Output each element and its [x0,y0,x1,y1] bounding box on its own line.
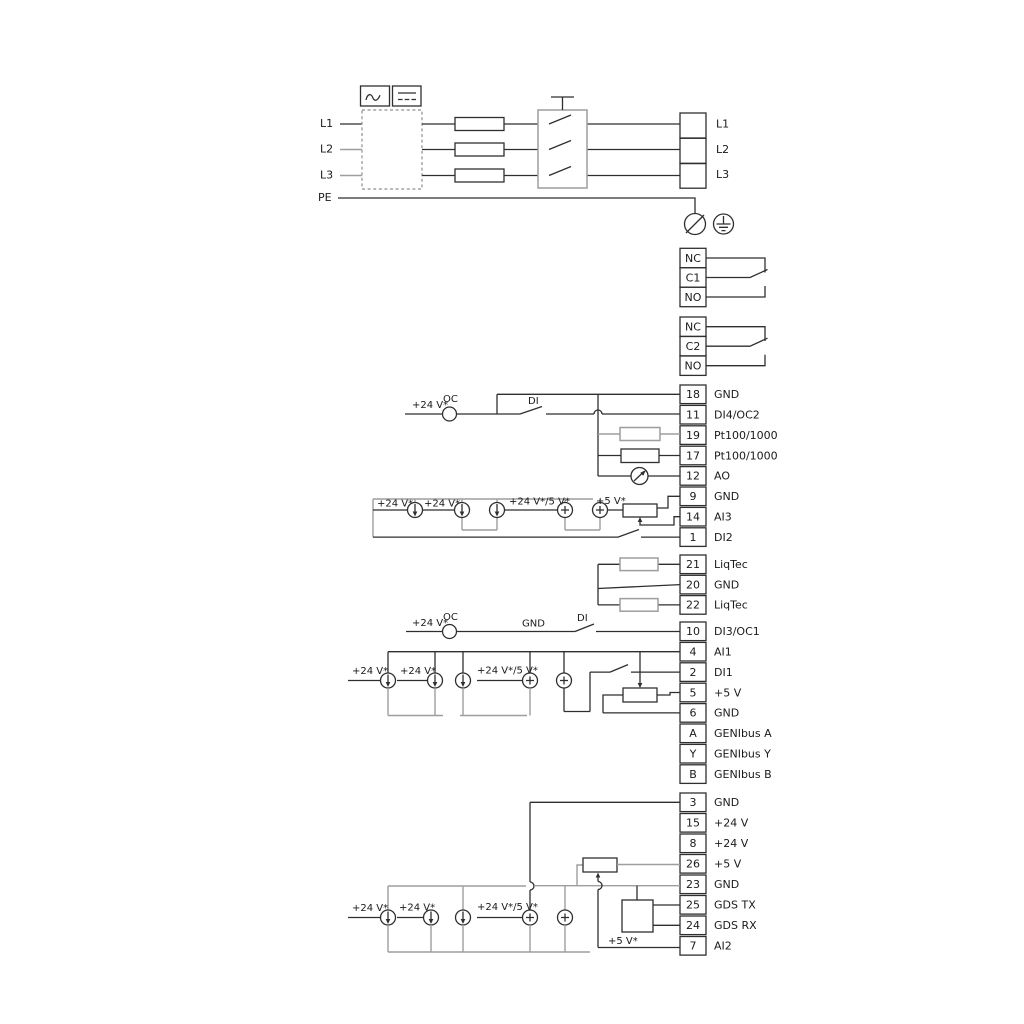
terminal-label: GDS RX [714,919,757,932]
oc-label: OC [443,394,458,405]
terminal-number: 23 [686,878,700,891]
terminal-number: 19 [686,429,700,442]
v5-label: +5 V* [596,496,626,507]
pt100-sensor-circuits [598,428,680,463]
potentiometer [623,504,657,517]
terminal-label: AI3 [714,511,732,524]
v24-5v-label: +24 V*/5 V* [477,902,538,913]
pe-ground [338,198,734,235]
liqtec-sensor-circuit [598,558,680,611]
terminal-label: Pt100/1000 [714,449,778,462]
terminal-number: 7 [690,940,697,953]
terminal-label: LiqTec [714,558,748,571]
terminal-cell [680,164,706,189]
terminal-number: Y [689,748,697,761]
terminal-number: 9 [690,490,697,503]
input-label-l3: L3 [320,169,333,182]
relay2-c2: C2 [686,340,701,353]
input-label-pe: PE [318,191,332,204]
terminal-label: GND [714,388,739,401]
ai3-option-group: +24 V* +24 V* +24 V*/5 V* +5 V* [373,496,680,537]
dc-symbol-box [393,86,422,106]
terminal-number: A [689,727,697,740]
terminal-number: B [689,768,697,781]
terminal-number: 4 [690,646,697,659]
terminal-number: 10 [686,625,700,638]
gnd-label: GND [522,619,545,630]
relay1-no: NO [685,291,702,304]
di-label: DI [577,613,588,624]
terminal-number: 14 [686,511,700,524]
v24-5v-label: +24 V*/5 V* [509,497,570,508]
terminal-number: 12 [686,470,700,483]
v5-label: +5 V* [608,936,638,947]
terminal-cell [680,113,706,138]
relay1-c1: C1 [686,271,701,284]
terminal-number: 18 [686,388,700,401]
wiring-diagram-page: L1 L2 L3 PE [0,0,1024,1024]
di3-oc1-circuit: +24 V* OC GND DI [406,612,680,639]
terminal-number: 15 [686,817,700,830]
v24-label: +24 V* [377,499,413,510]
terminal-label: +5 V [714,686,742,699]
wiring-diagram: L1 L2 L3 PE [0,0,1024,1024]
ac-symbol-box [361,86,390,106]
terminal-label: +24 V [714,837,749,850]
terminal-label: DI3/OC1 [714,625,760,638]
terminal-label: +5 V [714,858,742,871]
terminal-number: 22 [686,599,700,612]
terminal-label: AO [714,470,730,483]
terminal-number: 3 [690,796,697,809]
relay-1-block: NC C1 NO [680,248,768,306]
terminal-number: 8 [690,837,697,850]
terminal-number: 6 [690,707,697,720]
v24-label: +24 V* [399,903,435,914]
v24-label: +24 V* [352,666,388,677]
terminal-number: 5 [690,686,697,699]
di-label: DI [528,396,539,407]
terminal-strip-a: 18 11 19 17 12 9 14 1 GND DI4/OC2 Pt100/… [680,385,778,546]
relay-contact [706,327,768,366]
relay2-no: NO [685,360,702,373]
terminal-number: 20 [686,578,700,591]
v24-5v-label: +24 V*/5 V* [477,666,538,677]
v24-label: +24 V* [400,666,436,677]
resistor [620,599,658,612]
potentiometer [583,858,617,872]
input-label-l2: L2 [320,143,333,156]
v24-label: +24 V* [424,499,460,510]
resistor [620,428,660,441]
terminal-number: 21 [686,558,700,571]
power-section: L1 L2 L3 PE [318,86,734,235]
terminal-number: 26 [686,858,700,871]
terminal-number: 24 [686,919,700,932]
fuse-l2 [455,143,504,156]
terminal-label: LiqTec [714,599,748,612]
terminal-label: AI1 [714,646,732,659]
terminal-strip-d: 3 15 8 26 23 25 24 7 GND +24 V +24 V +5 … [680,793,757,955]
terminal-label: DI1 [714,666,733,679]
potentiometer [623,688,657,702]
terminal-number: 25 [686,899,700,912]
terminal-cell [680,138,706,163]
output-label-l2: L2 [716,143,729,156]
terminal-label: GND [714,796,739,809]
output-terminal-block: L1 L2 L3 [680,113,729,188]
terminal-label: DI4/OC2 [714,409,760,422]
terminal-number: 2 [690,666,697,679]
oc-label: OC [443,612,458,623]
terminal-number: 17 [686,449,700,462]
input-filter-box [362,110,422,189]
terminal-label: GDS TX [714,899,756,912]
terminal-label: GND [714,490,739,503]
fuse-l1 [455,118,504,131]
wire-hop [530,882,534,890]
terminal-strip-b: 21 20 22 LiqTec GND LiqTec [680,555,748,614]
gds-module-box [622,900,653,932]
relay1-nc: NC [685,252,701,265]
terminal-label: +24 V [714,817,749,830]
analog-output-circuit [598,468,680,485]
disconnect-switch-box [538,110,587,188]
resistor [620,558,658,571]
output-label-l3: L3 [716,168,729,181]
terminal-label: DI2 [714,531,733,544]
ai1-option-group: +24 V* +24 V* +24 V*/5 V* [348,652,680,716]
terminal-label: GENIbus Y [714,748,771,761]
terminal-label: AI2 [714,940,732,953]
terminal-label: GENIbus B [714,768,772,781]
terminal-label: GENIbus A [714,727,772,740]
terminal-label: GND [714,578,739,591]
terminal-number: 1 [690,531,697,544]
relay-contact [706,258,768,297]
relay2-nc: NC [685,321,701,334]
input-wires [340,124,362,176]
ai2-gds-option-group: +5 V* +24 V* +24 V* +24 V*/5 V* [348,802,680,952]
output-label-l1: L1 [716,118,729,131]
terminal-label: GND [714,878,739,891]
terminal-number: 11 [686,409,700,422]
terminal-strip-c: 10 4 2 5 6 A Y B DI3/OC1 AI1 DI1 +5 V GN… [680,622,772,783]
terminal-label: GND [714,707,739,720]
fuse-l3 [455,169,504,182]
resistor [621,449,659,463]
relay-2-block: NC C2 NO [680,317,768,375]
v24-label: +24 V* [352,903,388,914]
terminal-label: Pt100/1000 [714,429,778,442]
input-label-l1: L1 [320,117,333,130]
